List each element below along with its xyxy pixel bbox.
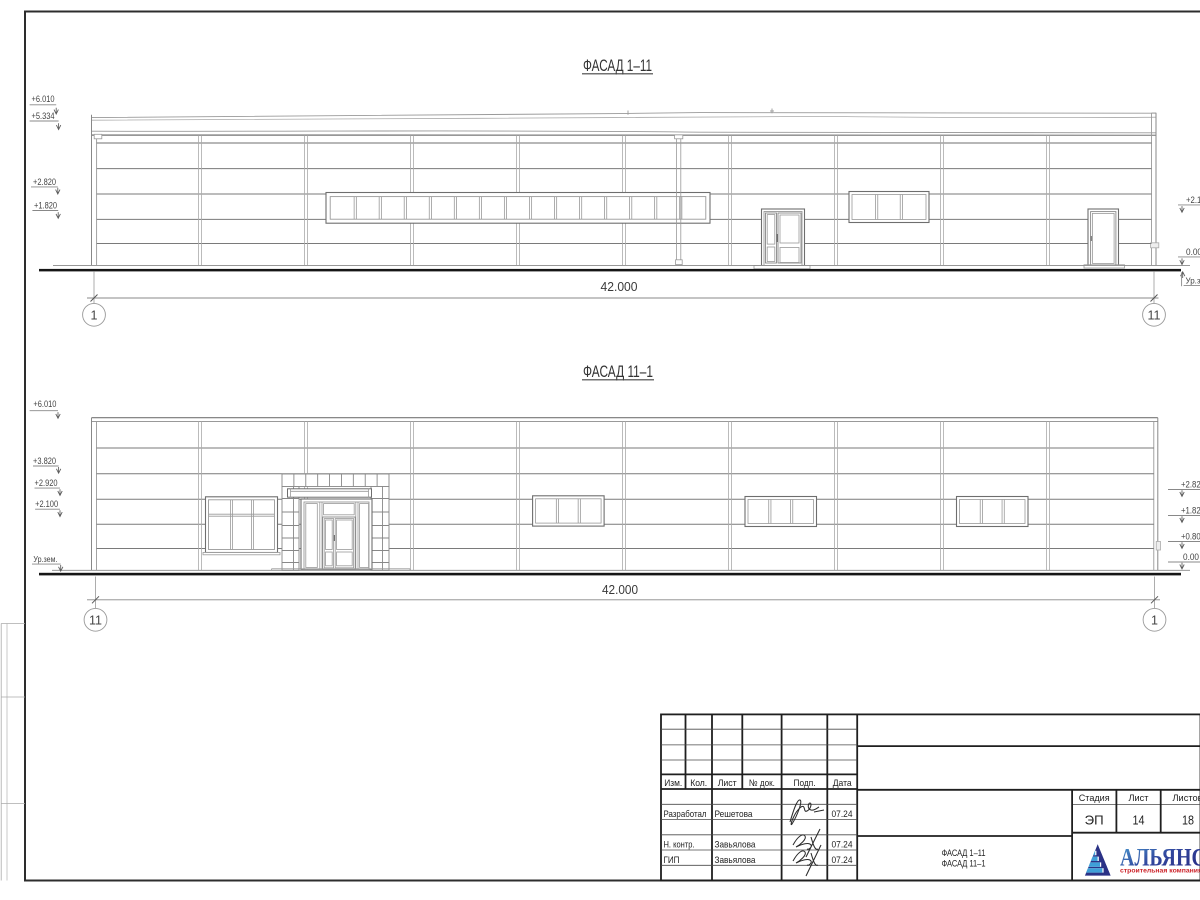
svg-text:42.000: 42.000 — [601, 279, 638, 294]
svg-text:Ур.зем.: Ур.зем. — [1186, 276, 1200, 285]
svg-text:+2.920: +2.920 — [35, 478, 58, 488]
svg-text:07.24: 07.24 — [832, 809, 853, 820]
svg-text:+6.010: +6.010 — [33, 399, 56, 409]
svg-text:+2.820: +2.820 — [1181, 480, 1200, 490]
svg-text:Лист: Лист — [718, 778, 738, 789]
svg-text:+2.100: +2.100 — [35, 499, 58, 509]
svg-text:Завьялова: Завьялова — [715, 855, 757, 866]
svg-text:ФАСАД 11–1: ФАСАД 11–1 — [583, 363, 653, 381]
svg-text:ФАСАД 11–1: ФАСАД 11–1 — [942, 858, 986, 869]
svg-text:№ док.: № док. — [749, 778, 775, 789]
svg-text:+5.334: +5.334 — [32, 111, 55, 121]
svg-text:ФАСАД 1–11: ФАСАД 1–11 — [942, 848, 986, 859]
svg-text:+3.820: +3.820 — [33, 456, 56, 466]
svg-text:ЭП: ЭП — [1085, 813, 1104, 828]
svg-text:Кол.: Кол. — [690, 778, 707, 789]
svg-text:0.00: 0.00 — [1183, 552, 1199, 562]
svg-text:Ур.зем.: Ур.зем. — [33, 555, 57, 564]
svg-text:+1.820: +1.820 — [34, 201, 57, 211]
svg-text:ФАСАД 1–11: ФАСАД 1–11 — [583, 57, 652, 75]
svg-text:+1.820: +1.820 — [1181, 506, 1200, 516]
svg-text:42.000: 42.000 — [602, 582, 638, 597]
svg-text:Дата: Дата — [833, 778, 853, 789]
svg-text:Завьялова: Завьялова — [715, 840, 757, 851]
svg-text:18: 18 — [1182, 813, 1194, 828]
svg-text:11: 11 — [89, 613, 102, 627]
svg-text:+0.800: +0.800 — [1181, 532, 1200, 542]
svg-text:0.00: 0.00 — [1186, 247, 1200, 257]
svg-text:Изм.: Изм. — [664, 778, 682, 789]
svg-text:+6.010: +6.010 — [32, 94, 55, 104]
svg-text:Стадия: Стадия — [1079, 793, 1110, 804]
svg-text:07.24: 07.24 — [832, 855, 853, 866]
svg-text:строительная компания: строительная компания — [1120, 868, 1200, 875]
svg-text:Решетова: Решетова — [715, 809, 754, 820]
svg-text:Листов: Листов — [1173, 793, 1200, 804]
svg-text:ГИП: ГИП — [664, 855, 680, 866]
svg-text:Н. контр.: Н. контр. — [664, 840, 695, 851]
svg-text:Лист: Лист — [1129, 793, 1150, 804]
svg-text:11: 11 — [1148, 308, 1161, 322]
svg-text:+2.100: +2.100 — [1186, 195, 1200, 205]
svg-text:07.24: 07.24 — [832, 840, 853, 851]
svg-text:Подп.: Подп. — [794, 778, 816, 789]
svg-text:14: 14 — [1133, 813, 1145, 828]
svg-text:Разработал: Разработал — [664, 809, 707, 820]
svg-text:+2.820: +2.820 — [33, 177, 56, 187]
svg-text:1: 1 — [91, 308, 98, 322]
svg-text:1: 1 — [1151, 613, 1158, 627]
